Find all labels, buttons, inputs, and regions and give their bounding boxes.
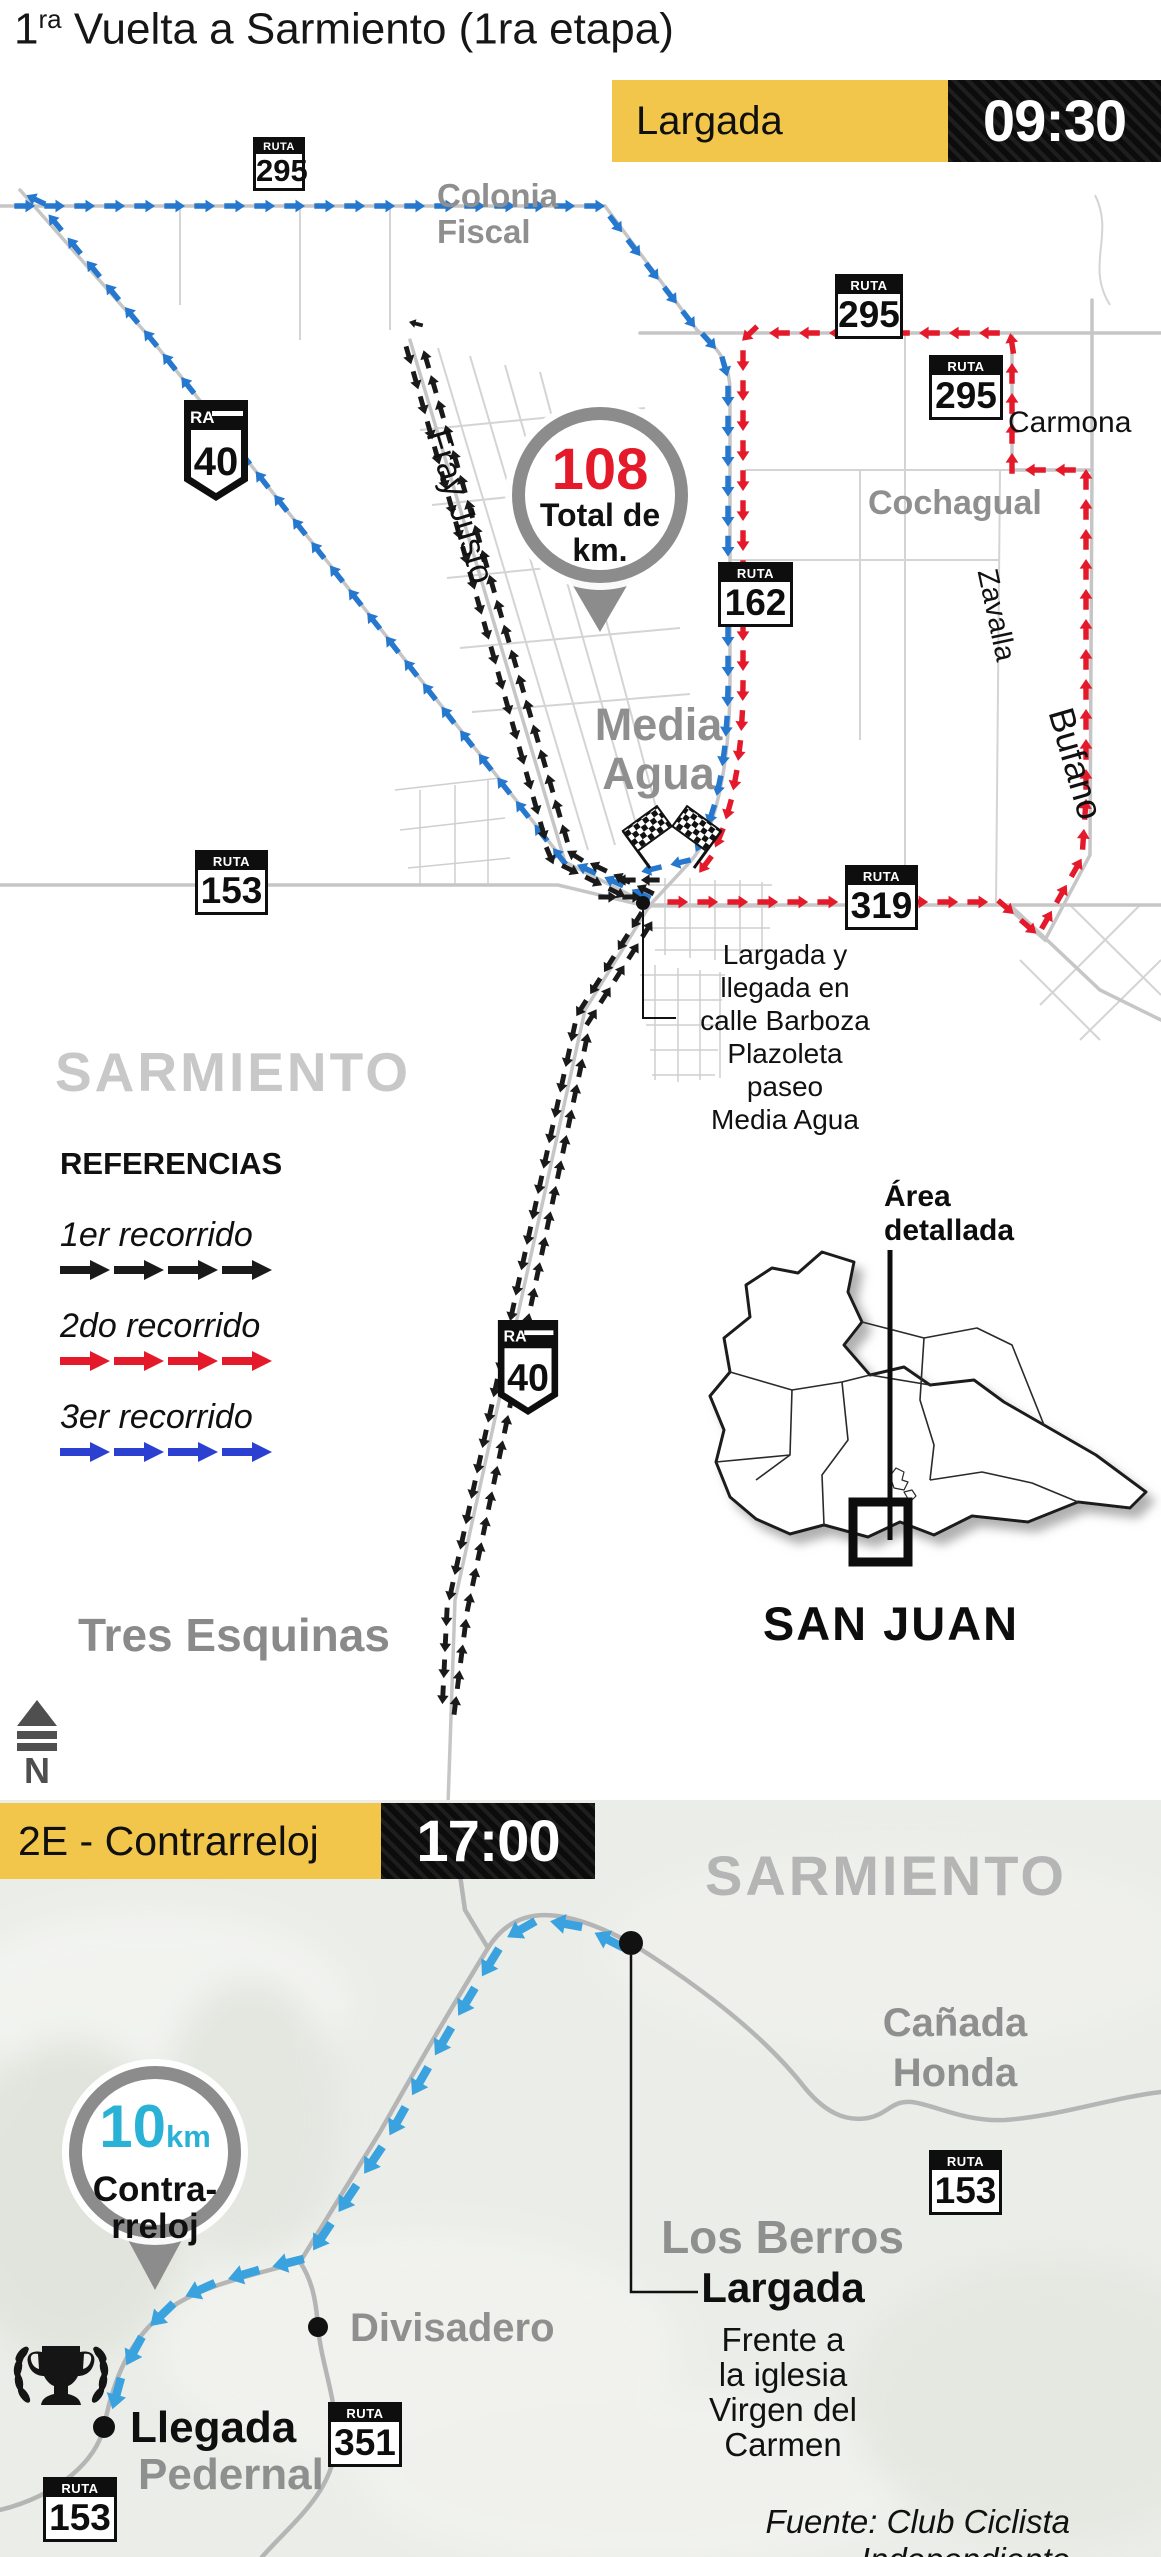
route-arrows <box>448 918 657 1715</box>
route-1er-south-out <box>442 912 642 1712</box>
route-arrows <box>408 318 424 330</box>
stage2-header-label: 2E - Contrarreloj <box>0 1803 381 1879</box>
infographic-canvas: 1ra Vuelta a Sarmiento (1ra etapa) Larga… <box>0 0 1161 2557</box>
route-1er-south-return <box>454 917 655 1715</box>
route-badge-162: RUTA162 <box>718 562 793 627</box>
ra40-shield-south: RA 40 <box>496 1318 560 1418</box>
stage1-start-dot <box>636 896 650 910</box>
svg-text:RA: RA <box>190 408 215 427</box>
stage1-time-text: 09:30 <box>983 88 1126 155</box>
stage2-time-text: 17:00 <box>416 1808 559 1875</box>
svg-text:40: 40 <box>507 1357 549 1399</box>
route-badge-319: RUTA319 <box>845 865 918 930</box>
legend-item-2-label: 2do recorrido <box>60 1307 260 1346</box>
stage2-start-note: Frente a la iglesia Virgen del Carmen <box>683 2322 883 2462</box>
legend-item-1-arrows <box>60 1256 275 1284</box>
label-carmona: Carmona <box>1008 406 1131 440</box>
route-badge-153-pedernal: RUTA153 <box>43 2477 117 2542</box>
stage2-header-time: 17:00 <box>381 1803 595 1879</box>
stage1-start-note: Largada y llegada en calle Barboza Plazo… <box>695 938 875 1136</box>
label-canada-honda: Cañada Honda <box>875 1998 1035 2098</box>
tt-pin: 10km Contra- rreloj <box>69 2066 241 2238</box>
svg-text:N: N <box>24 1750 50 1786</box>
title-number: 1 <box>14 5 38 54</box>
llegada-dot <box>93 2416 115 2438</box>
legend-item-1-label: 1er recorrido <box>60 1216 253 1255</box>
legend-item-3-label: 3er recorrido <box>60 1398 253 1437</box>
label-largada-stage2: Largada <box>683 2264 883 2312</box>
route-badge-295-b: RUTA295 <box>835 274 903 339</box>
label-tres-esquinas: Tres Esquinas <box>78 1608 390 1662</box>
legend-item-2-arrows <box>60 1347 275 1375</box>
legend-title: REFERENCIAS <box>60 1146 282 1182</box>
route-arrows <box>437 909 647 1704</box>
route-badge-153-west: RUTA153 <box>195 850 268 915</box>
title-text: Vuelta a Sarmiento (1ra etapa) <box>62 5 674 54</box>
legend-item-3-arrows <box>60 1438 275 1466</box>
route-badge-153-canada: RUTA153 <box>929 2150 1002 2215</box>
inset-area-label: Área detallada <box>884 1180 1014 1248</box>
province-outline <box>710 1252 1146 1537</box>
route-arrows <box>617 874 660 886</box>
source-credit: Fuente: Club Ciclista Independiente <box>600 2503 1070 2557</box>
label-los-berros: Los Berros <box>660 2210 905 2264</box>
stage1-header-text: Largada <box>612 99 783 144</box>
svg-text:RA: RA <box>504 1329 528 1346</box>
route-badge-351: RUTA351 <box>328 2402 402 2467</box>
page-title: 1ra Vuelta a Sarmiento (1ra etapa) <box>14 4 674 55</box>
north-arrow-icon: N <box>14 1698 60 1786</box>
label-pedernal: Pedernal <box>138 2450 324 2500</box>
stage1-header-time: 09:30 <box>948 80 1161 162</box>
stage1-header-label: Largada <box>612 80 948 162</box>
total-km-value: 108 <box>525 442 675 498</box>
label-divisadero: Divisadero <box>350 2306 555 2351</box>
stage2-header-text: 2E - Contrarreloj <box>0 1818 319 1865</box>
label-media-agua: Media Agua <box>571 700 746 798</box>
label-cochagual: Cochagual <box>868 484 1042 523</box>
title-sup: ra <box>38 4 61 34</box>
ra40-shield-north: RA 40 <box>182 398 250 504</box>
divisadero-dot <box>308 2317 328 2337</box>
stage2-start-dot <box>619 1931 643 1955</box>
label-sarmiento-stage2: SARMIENTO <box>705 1843 1067 1908</box>
label-sarmiento-stage1: SARMIENTO <box>55 1040 411 1104</box>
svg-text:40: 40 <box>194 440 239 484</box>
total-km-pin: 108 Total de km. <box>512 407 688 583</box>
label-colonia-fiscal: Colonia Fiscal <box>437 178 558 250</box>
inset-province-name: SAN JUAN <box>741 1596 1041 1651</box>
route-badge-295-c: RUTA295 <box>929 355 1003 420</box>
route-badge-295-a: RUTA295 <box>253 137 305 191</box>
label-llegada: Llegada <box>130 2403 296 2453</box>
tt-distance: 10km <box>82 2099 228 2171</box>
